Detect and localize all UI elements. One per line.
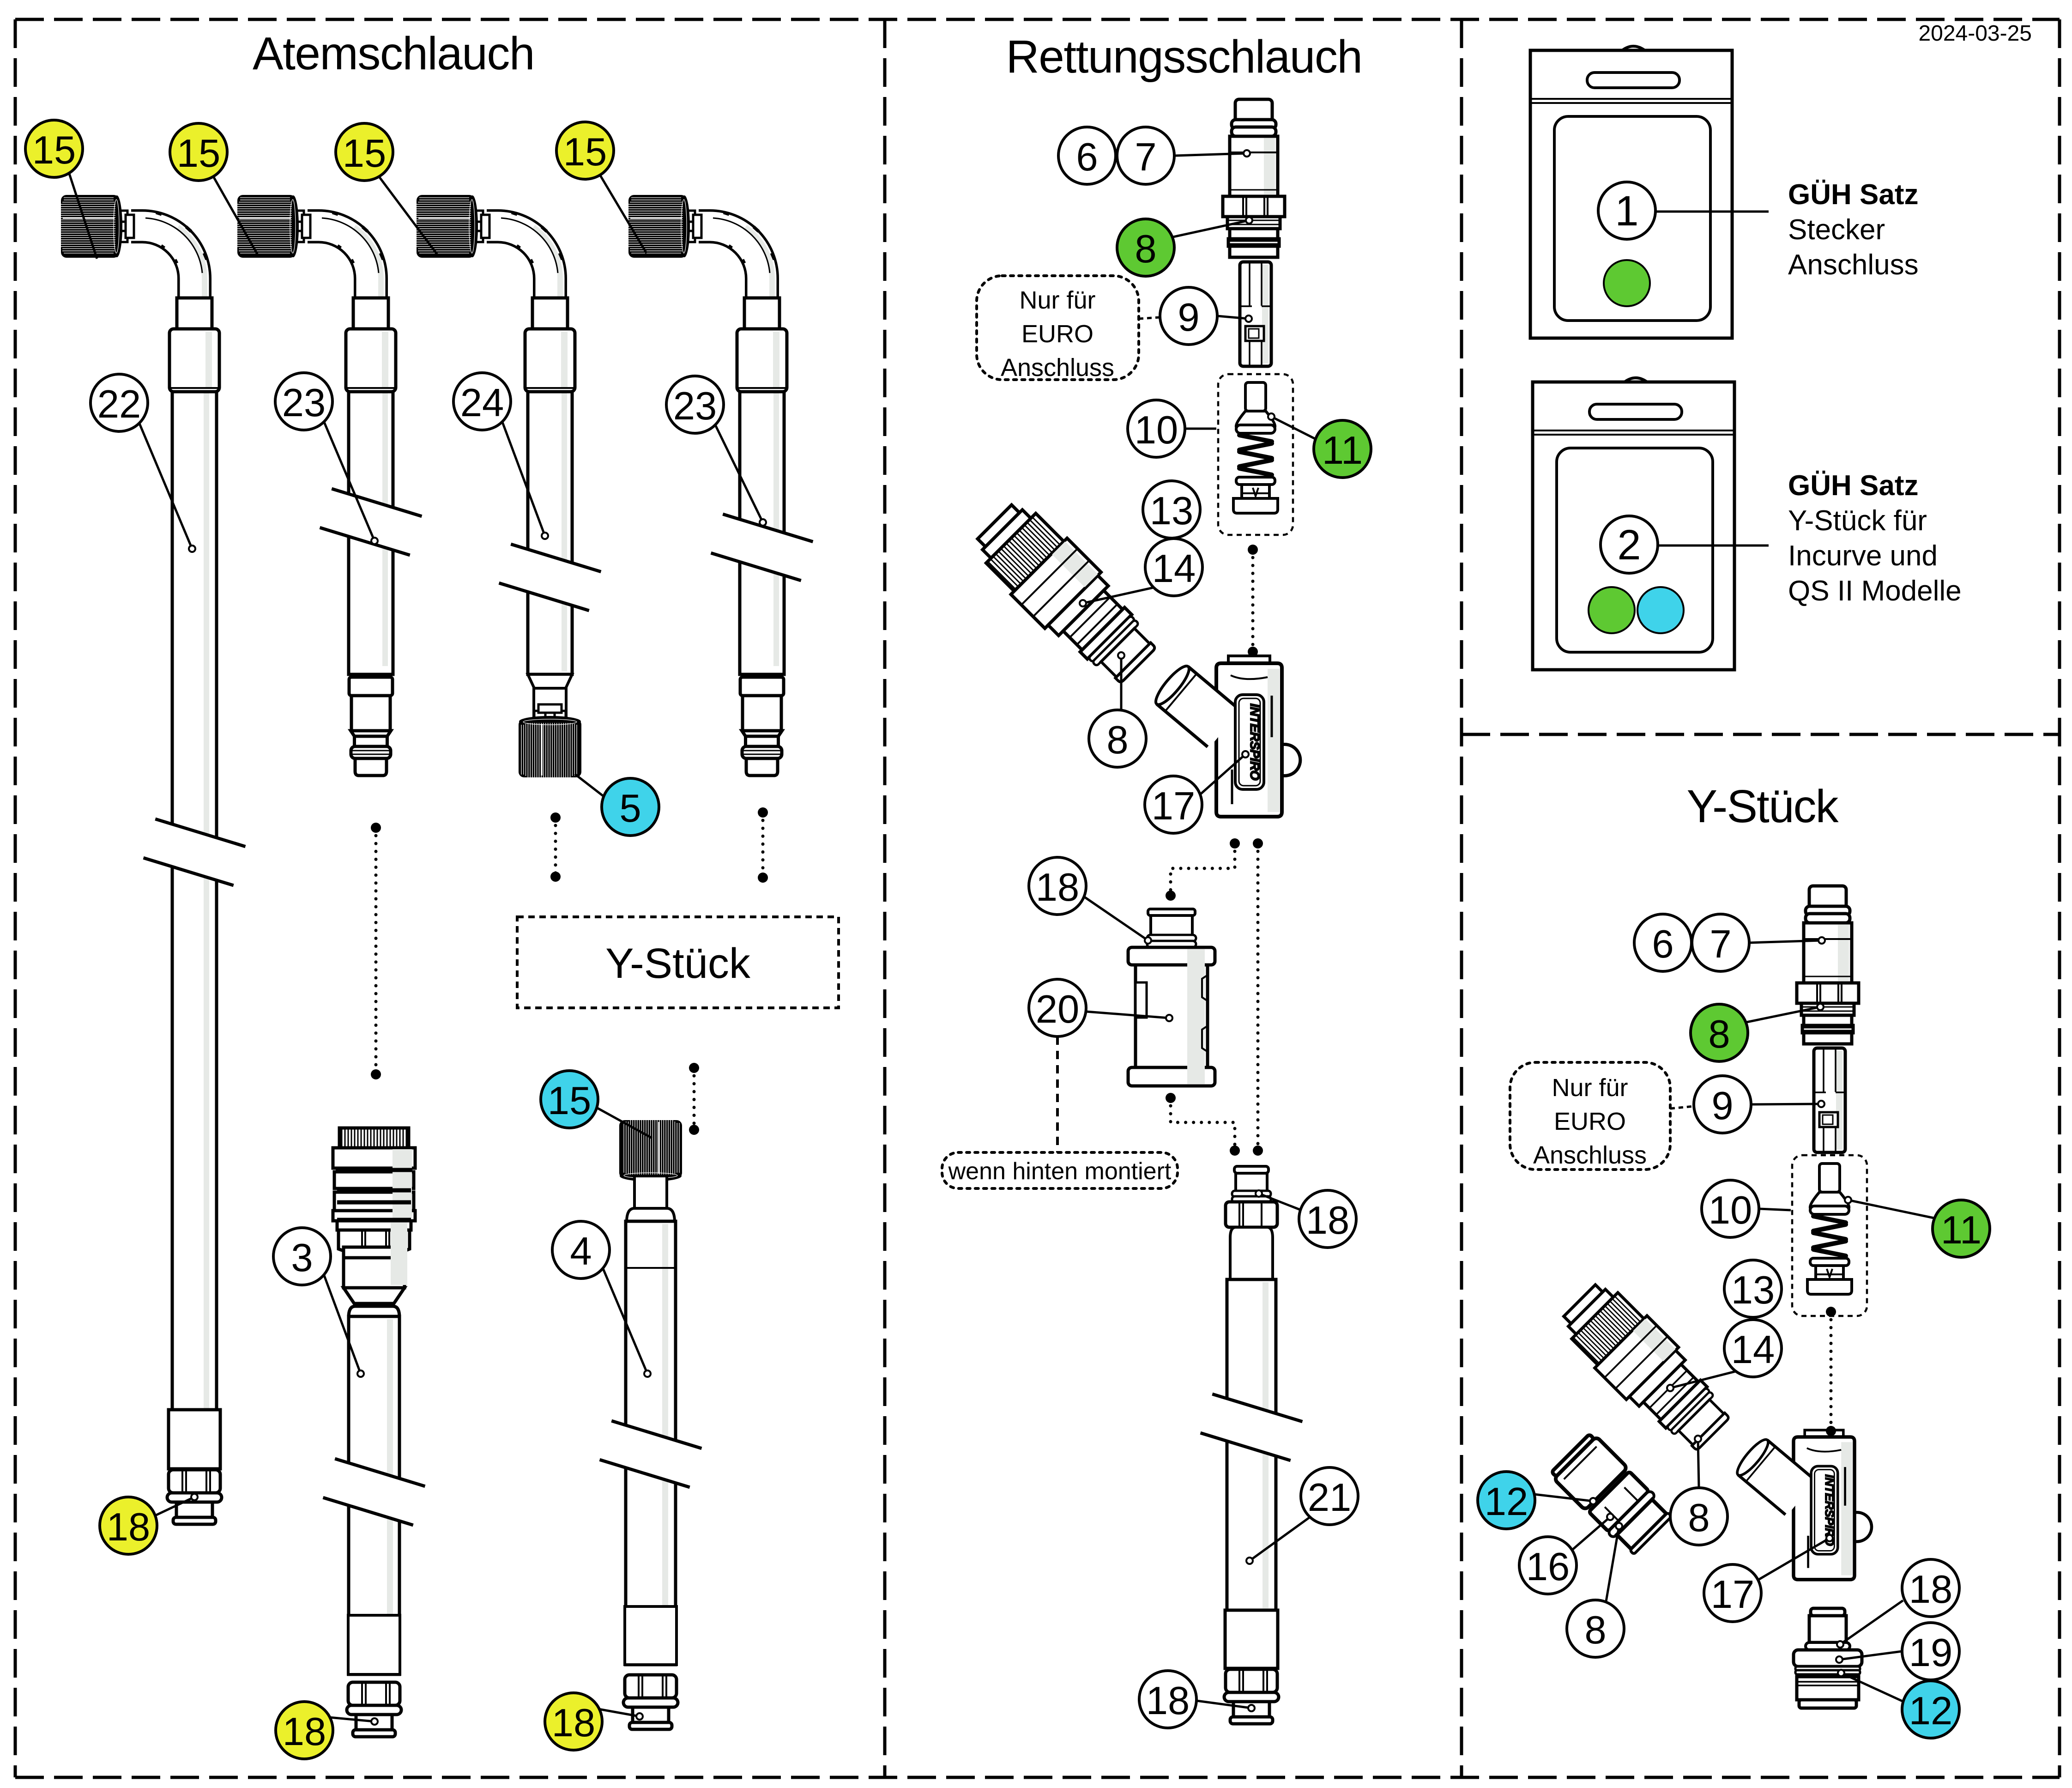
svg-text:4: 4 — [570, 1230, 592, 1273]
svg-text:20: 20 — [1036, 988, 1080, 1031]
svg-text:2024-03-25: 2024-03-25 — [1918, 21, 2032, 46]
svg-text:9: 9 — [1711, 1084, 1733, 1128]
svg-text:17: 17 — [1152, 784, 1196, 828]
svg-text:18: 18 — [1306, 1199, 1350, 1243]
svg-text:16: 16 — [1526, 1545, 1570, 1589]
svg-text:Y-Stück: Y-Stück — [605, 940, 751, 987]
svg-text:Anschluss: Anschluss — [1788, 249, 1919, 281]
svg-text:13: 13 — [1731, 1268, 1775, 1312]
svg-text:21: 21 — [1308, 1476, 1352, 1520]
svg-text:Anschluss: Anschluss — [1533, 1141, 1647, 1169]
svg-text:15: 15 — [563, 130, 607, 174]
svg-text:Y-Stück für: Y-Stück für — [1788, 505, 1927, 537]
svg-text:23: 23 — [282, 381, 326, 425]
svg-text:11: 11 — [1322, 429, 1363, 473]
svg-text:2: 2 — [1617, 521, 1641, 569]
svg-text:QS II Modelle: QS II Modelle — [1788, 575, 1962, 607]
svg-text:Y-Stück: Y-Stück — [1687, 781, 1839, 832]
svg-text:Incurve und: Incurve und — [1788, 540, 1938, 572]
svg-text:12: 12 — [1909, 1689, 1953, 1733]
svg-text:18: 18 — [1909, 1568, 1953, 1612]
svg-text:19: 19 — [1909, 1631, 1953, 1675]
svg-text:5: 5 — [619, 787, 641, 830]
svg-text:Nur für: Nur für — [1552, 1074, 1628, 1102]
svg-text:18: 18 — [1036, 866, 1080, 909]
svg-text:3: 3 — [291, 1236, 313, 1280]
svg-text:18: 18 — [1146, 1679, 1190, 1723]
svg-text:17: 17 — [1711, 1573, 1755, 1617]
svg-text:15: 15 — [177, 132, 221, 176]
svg-text:1: 1 — [1615, 188, 1638, 235]
svg-text:6: 6 — [1652, 922, 1673, 966]
svg-text:24: 24 — [460, 381, 504, 425]
svg-text:7: 7 — [1710, 922, 1731, 966]
svg-text:18: 18 — [552, 1701, 596, 1745]
svg-text:23: 23 — [673, 384, 717, 428]
svg-text:15: 15 — [343, 132, 387, 176]
svg-text:22: 22 — [97, 382, 141, 426]
svg-text:12: 12 — [1485, 1480, 1528, 1524]
svg-text:11: 11 — [1941, 1208, 1981, 1252]
svg-text:15: 15 — [548, 1079, 592, 1123]
svg-text:EURO: EURO — [1554, 1108, 1626, 1135]
svg-text:14: 14 — [1152, 547, 1196, 591]
svg-text:18: 18 — [283, 1710, 326, 1754]
svg-text:8: 8 — [1584, 1608, 1606, 1652]
svg-text:wenn hinten montiert: wenn hinten montiert — [948, 1158, 1172, 1185]
svg-text:18: 18 — [107, 1505, 151, 1549]
svg-text:Anschluss: Anschluss — [1001, 354, 1114, 382]
svg-text:7: 7 — [1135, 135, 1156, 179]
svg-text:13: 13 — [1150, 489, 1194, 533]
svg-text:8: 8 — [1708, 1012, 1730, 1056]
svg-text:8: 8 — [1135, 227, 1156, 271]
svg-text:8: 8 — [1688, 1496, 1710, 1540]
svg-text:Nur für: Nur für — [1019, 286, 1095, 314]
svg-text:9: 9 — [1178, 296, 1199, 339]
svg-text:15: 15 — [32, 128, 76, 172]
svg-text:Stecker: Stecker — [1788, 214, 1885, 246]
svg-text:6: 6 — [1076, 135, 1098, 179]
svg-text:Rettungsschlauch: Rettungsschlauch — [1006, 31, 1362, 83]
svg-text:10: 10 — [1135, 408, 1178, 452]
svg-text:8: 8 — [1106, 718, 1128, 762]
svg-text:Atemschlauch: Atemschlauch — [253, 28, 534, 79]
svg-text:EURO: EURO — [1021, 320, 1093, 348]
svg-text:14: 14 — [1731, 1328, 1775, 1372]
svg-text:10: 10 — [1709, 1188, 1752, 1232]
svg-text:GÜH Satz: GÜH Satz — [1788, 470, 1918, 502]
svg-text:GÜH Satz: GÜH Satz — [1788, 179, 1918, 211]
